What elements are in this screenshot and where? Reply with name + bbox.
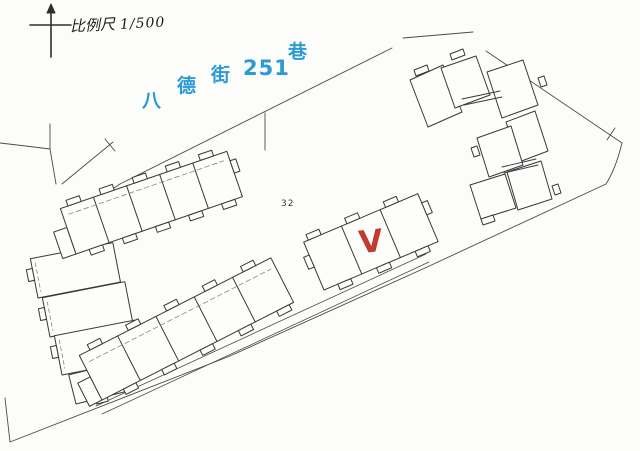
left-boundary-vertical [50,124,56,184]
north-arrow-icon [30,4,71,57]
site-plan-drawing [0,0,640,451]
street-char-2: 德 [177,77,196,96]
cluster-northeast [410,49,561,225]
top-dash-line [403,32,473,38]
selection-checkmark: V [357,226,384,259]
left-boundary-curve [0,143,50,149]
left-branch-line [62,142,113,184]
lot-number-label: 32 [281,200,294,209]
row-northwest [45,144,250,265]
street-char-5: 巷 [288,43,307,62]
left-tick [105,139,115,151]
street-lane-number: 251 [243,58,290,79]
site-plan-page: 比例尺1/500 八 德 街 251 巷 32 V [0,0,640,451]
street-char-1: 八 [142,92,161,111]
scale-ratio: 1/500 [120,15,166,33]
street-char-3: 街 [211,66,230,85]
street-edge-hook [114,184,120,188]
right-boundary-curve [606,143,622,184]
scale-label-text: 比例尺 [70,15,116,35]
